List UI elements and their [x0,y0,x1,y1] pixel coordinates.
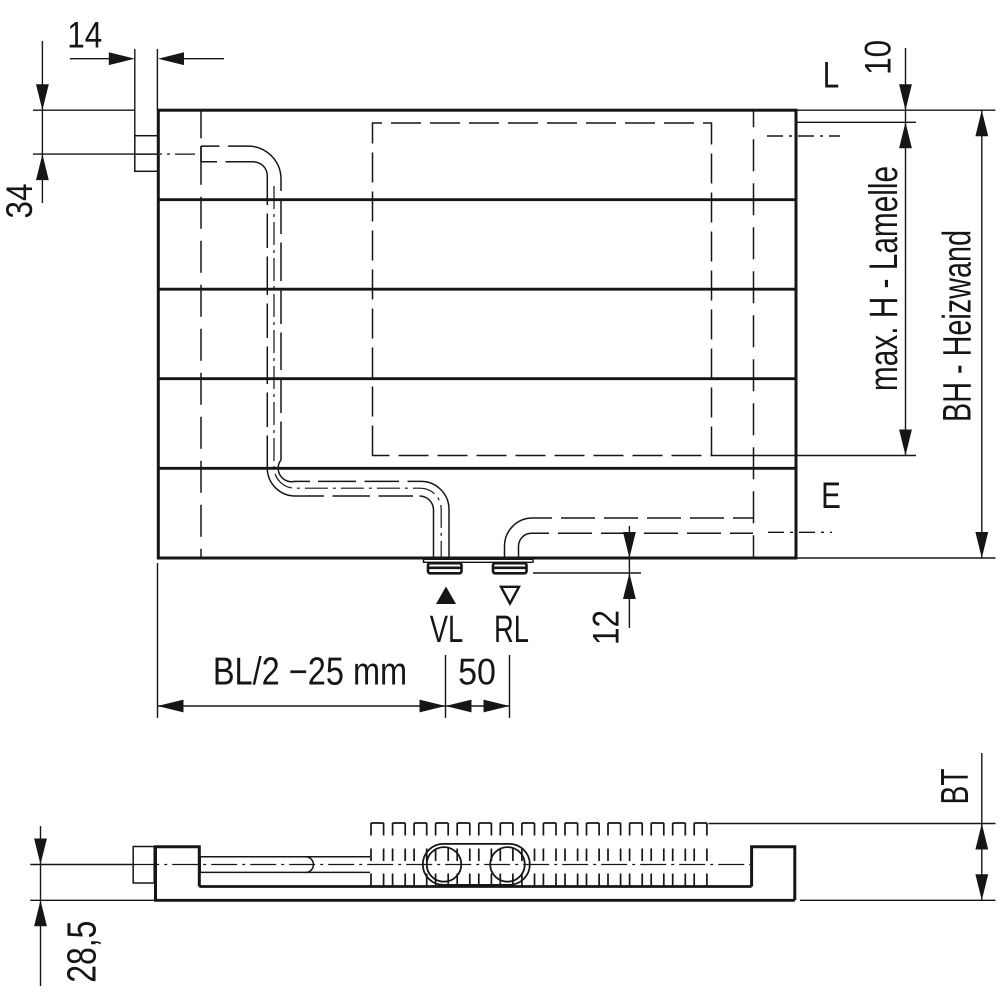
svg-text:12: 12 [586,610,627,645]
svg-text:28,5: 28,5 [59,921,105,983]
svg-text:50: 50 [458,651,496,693]
svg-text:BL/2 −25 mm: BL/2 −25 mm [213,650,407,693]
svg-text:BH - Heizwand: BH - Heizwand [935,230,980,422]
svg-text:E: E [821,476,841,517]
svg-text:max. H - Lamelle: max. H - Lamelle [862,166,906,391]
svg-text:RL: RL [494,609,529,651]
svg-text:14: 14 [67,15,102,56]
svg-text:34: 34 [0,184,40,219]
svg-text:L: L [823,56,839,97]
svg-text:BT: BT [934,768,978,804]
svg-text:VL: VL [430,609,463,651]
svg-text:10: 10 [858,40,899,75]
